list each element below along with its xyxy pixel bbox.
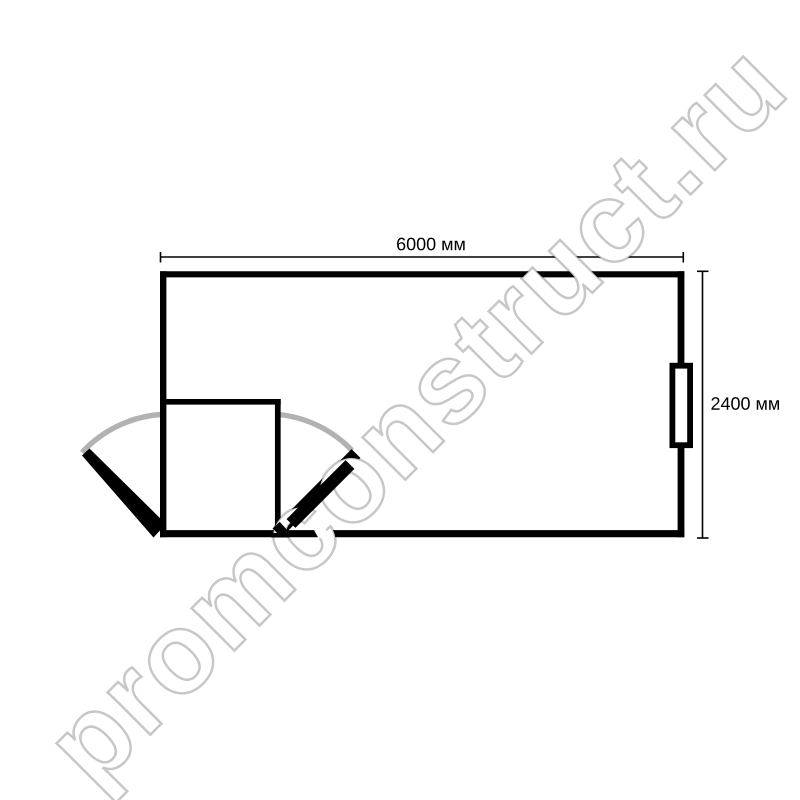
svg-text:6000 мм: 6000 мм [396, 234, 466, 254]
svg-text:2400 мм: 2400 мм [710, 394, 780, 414]
